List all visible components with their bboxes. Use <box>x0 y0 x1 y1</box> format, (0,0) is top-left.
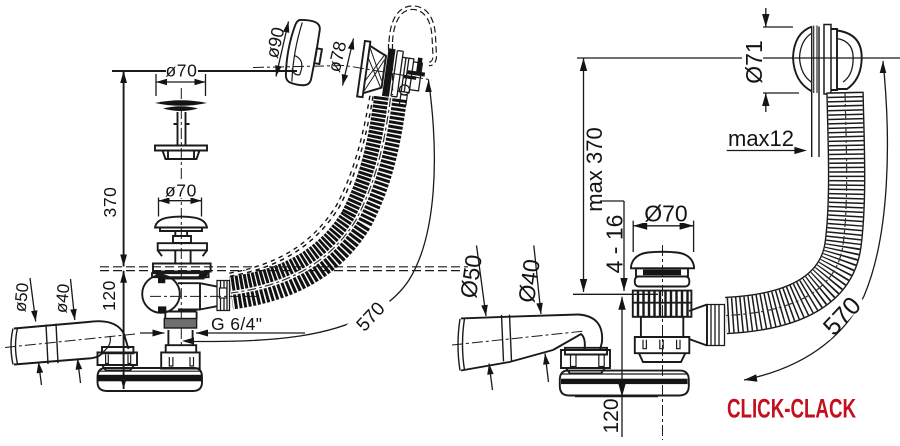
svg-text:120: 120 <box>99 280 119 311</box>
svg-text:Ø50: Ø50 <box>455 253 487 300</box>
svg-text:Ø71: Ø71 <box>741 40 767 83</box>
svg-text:max 370: max 370 <box>582 127 607 211</box>
svg-text:ø90: ø90 <box>262 25 288 60</box>
svg-text:Ø40: Ø40 <box>513 258 545 305</box>
svg-text:ø70: ø70 <box>165 180 197 200</box>
svg-text:4 - 16: 4 - 16 <box>602 215 628 274</box>
svg-text:CLICK-CLACK: CLICK-CLACK <box>727 394 856 424</box>
svg-text:120: 120 <box>600 398 623 433</box>
svg-text:ø50: ø50 <box>11 282 33 313</box>
svg-text:ø70: ø70 <box>166 61 198 81</box>
svg-text:G 6/4": G 6/4" <box>211 314 262 334</box>
svg-text:ø40: ø40 <box>52 283 74 314</box>
svg-text:Ø70: Ø70 <box>644 201 687 227</box>
svg-text:max12: max12 <box>728 126 794 151</box>
svg-text:370: 370 <box>100 187 120 218</box>
